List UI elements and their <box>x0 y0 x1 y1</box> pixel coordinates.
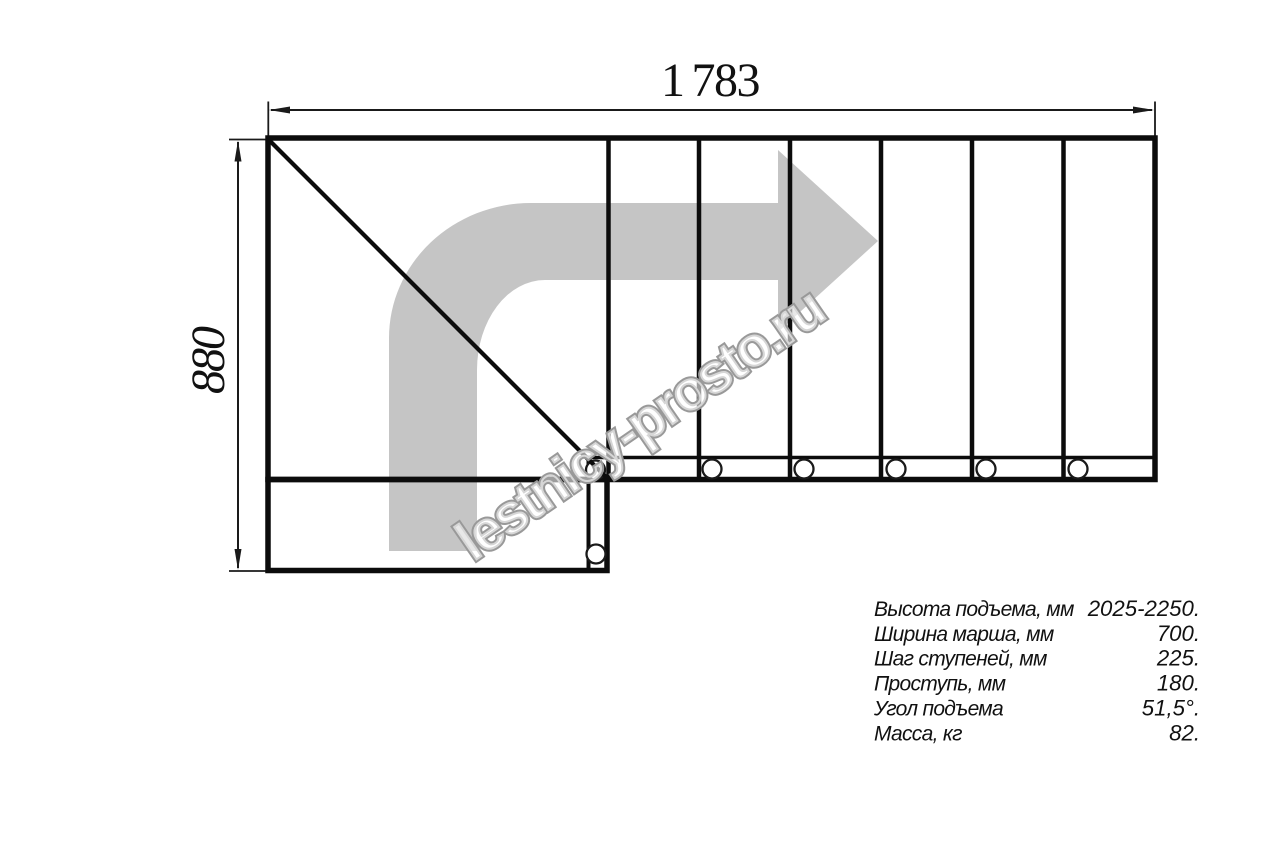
svg-text:Проступь, мм: Проступь, мм <box>874 673 1006 696</box>
svg-text:82.: 82. <box>1169 720 1200 745</box>
svg-text:Масса, кг: Масса, кг <box>874 722 962 745</box>
svg-text:1 783: 1 783 <box>661 54 760 107</box>
svg-text:Угол подъема: Угол подъема <box>873 698 1003 721</box>
svg-text:700.: 700. <box>1157 621 1200 646</box>
svg-text:Высота подъема, мм: Высота подъема, мм <box>874 598 1074 621</box>
svg-text:180.: 180. <box>1157 671 1200 696</box>
svg-text:225.: 225. <box>1156 646 1200 671</box>
svg-text:880: 880 <box>182 326 235 394</box>
svg-text:Шаг ступеней, мм: Шаг ступеней, мм <box>874 648 1047 671</box>
svg-text:51,5°.: 51,5°. <box>1142 696 1200 721</box>
svg-text:2025-2250.: 2025-2250. <box>1087 596 1200 621</box>
svg-text:Ширина марша, мм: Ширина марша, мм <box>874 623 1054 646</box>
